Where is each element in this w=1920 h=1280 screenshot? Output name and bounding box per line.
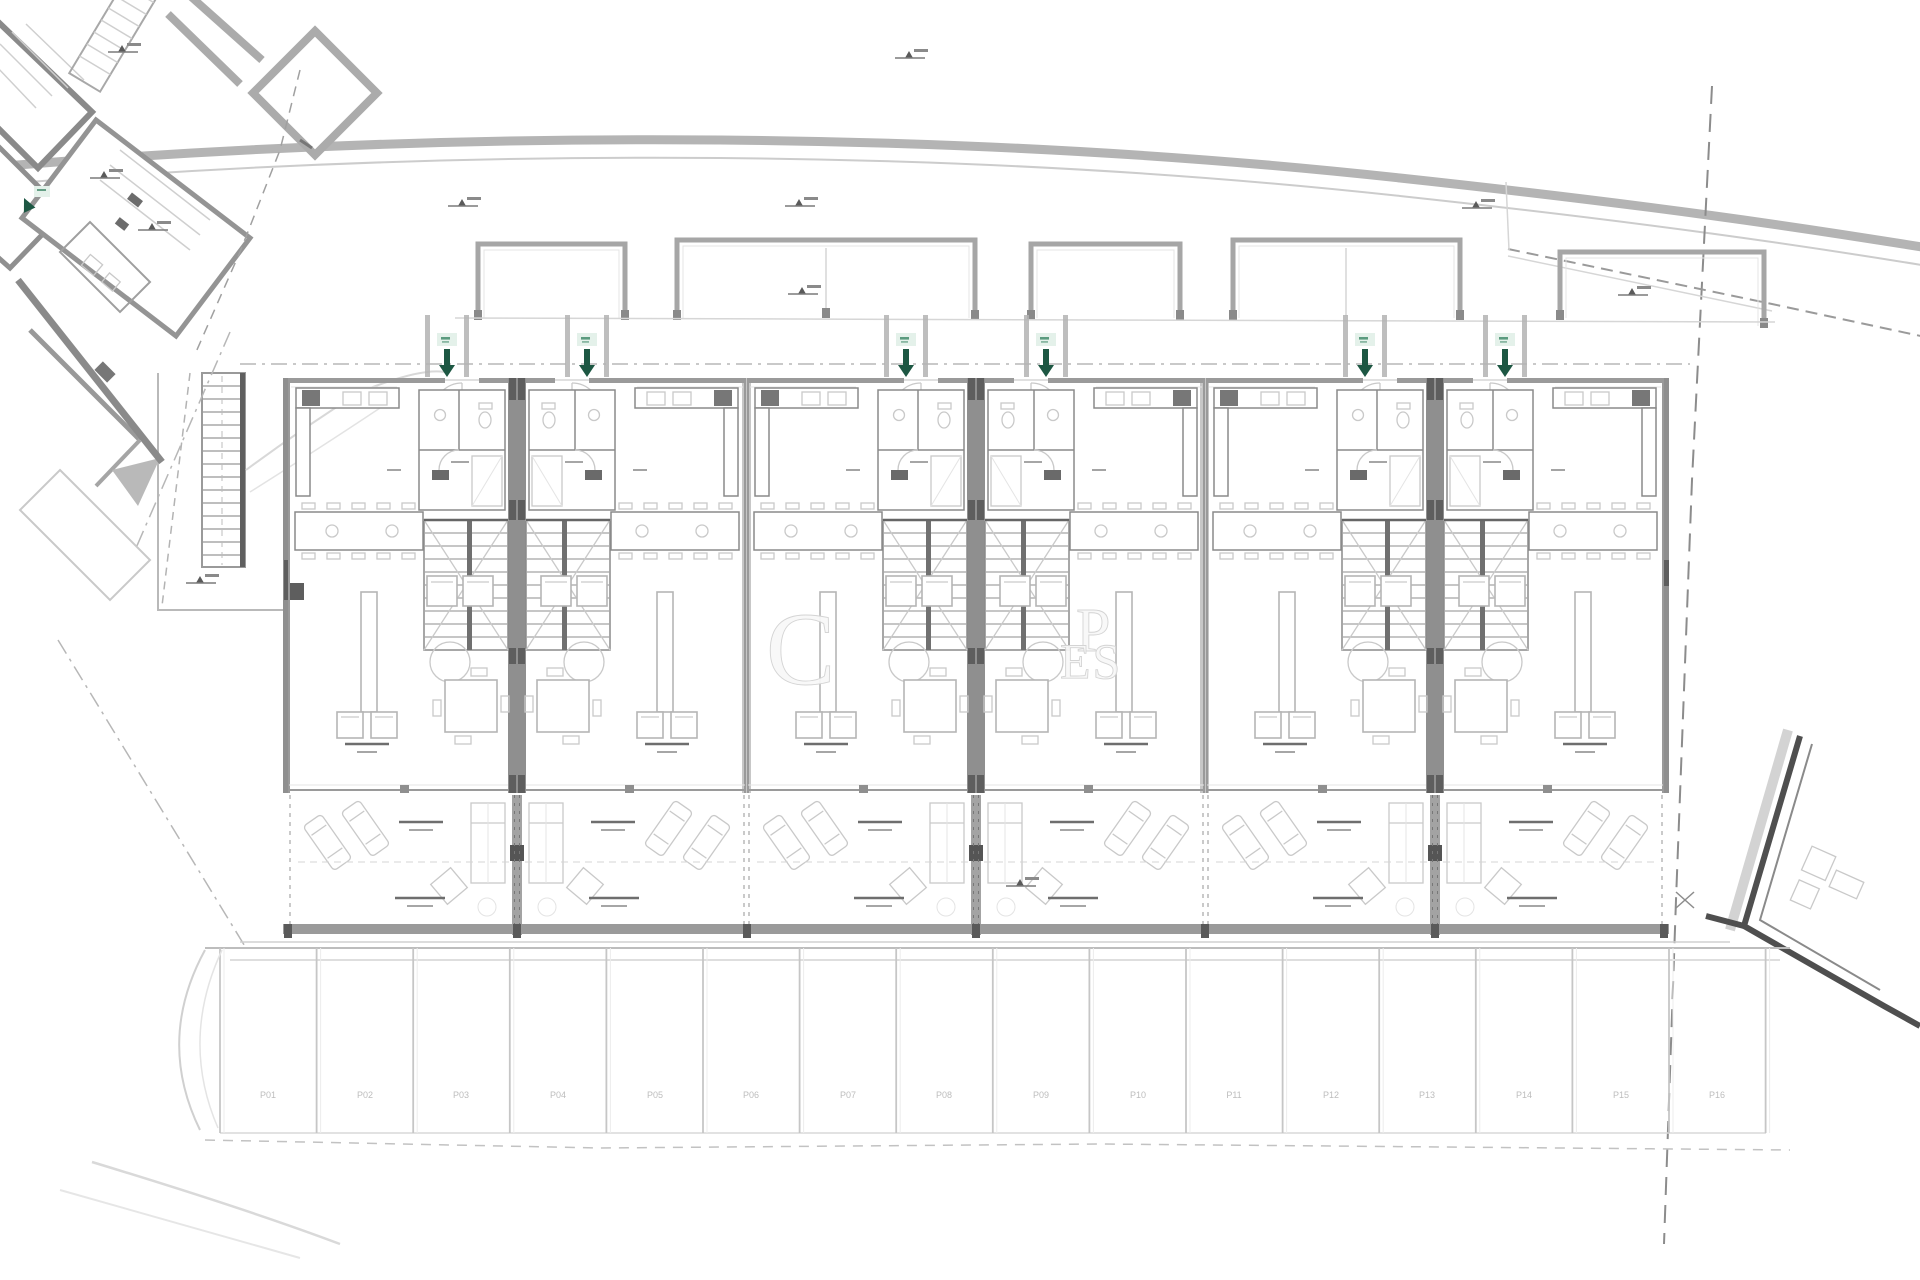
main-building bbox=[240, 315, 1690, 793]
unit-6 bbox=[1435, 378, 1664, 793]
existing-buildings-northwest bbox=[0, 0, 377, 600]
level-marker-icon bbox=[785, 197, 818, 206]
exterior-stair bbox=[202, 373, 245, 567]
carport-2 bbox=[673, 240, 979, 320]
site-boundaries bbox=[58, 86, 1920, 1258]
terrace-2 bbox=[515, 795, 744, 935]
parking-stall-label: P07 bbox=[840, 1090, 856, 1100]
parking-stall-label: P14 bbox=[1516, 1090, 1532, 1100]
parking-stall-label: P03 bbox=[453, 1090, 469, 1100]
parking-stall-label: P16 bbox=[1709, 1090, 1725, 1100]
level-marker-icon bbox=[186, 574, 219, 583]
parking-stall-label: P06 bbox=[743, 1090, 759, 1100]
level-marker-icon bbox=[895, 49, 928, 58]
parking-stall-label: P08 bbox=[936, 1090, 952, 1100]
parking-stall-label: P02 bbox=[357, 1090, 373, 1100]
level-marker-icon bbox=[1618, 286, 1651, 295]
parking-row: P01 P02 P03 P04 P05 P06 P07 P08 P09 P10 … bbox=[179, 948, 1790, 1150]
level-marker-icon bbox=[788, 285, 821, 294]
parking-stall-label: P10 bbox=[1130, 1090, 1146, 1100]
terrace-6 bbox=[1433, 795, 1662, 935]
floor-plan-canvas: P01 P02 P03 P04 P05 P06 P07 P08 P09 P10 … bbox=[0, 0, 1920, 1280]
west-yard-and-stair bbox=[18, 280, 444, 610]
watermark-letter: C bbox=[766, 592, 835, 707]
terrace-5 bbox=[1208, 795, 1437, 935]
parking-stall-label: P01 bbox=[260, 1090, 276, 1100]
parking-stall-label: P04 bbox=[550, 1090, 566, 1100]
entrance-arrows bbox=[425, 315, 1527, 377]
parking-stall-label: P12 bbox=[1323, 1090, 1339, 1100]
entrance-arrow-icon bbox=[1483, 315, 1527, 377]
unit-4 bbox=[976, 378, 1205, 793]
entrance-arrow-icon bbox=[884, 315, 928, 377]
level-marker-icon bbox=[108, 43, 141, 52]
carport-1 bbox=[474, 244, 629, 320]
entrance-halo bbox=[34, 186, 50, 197]
parking-stall-label: P13 bbox=[1419, 1090, 1435, 1100]
unit-1 bbox=[288, 378, 517, 793]
entrance-arrow-icon bbox=[1024, 315, 1068, 377]
entrance-arrow-icon bbox=[1343, 315, 1387, 377]
terrace-1 bbox=[290, 795, 519, 935]
top-road bbox=[0, 140, 1920, 268]
terrace-4 bbox=[974, 795, 1203, 935]
carport-3 bbox=[1027, 244, 1184, 320]
site-level-markers bbox=[448, 49, 1651, 295]
entrance-arrow-icon bbox=[425, 315, 469, 377]
terrace-3 bbox=[749, 795, 978, 935]
parking-stall-label: P15 bbox=[1613, 1090, 1629, 1100]
entrance-arrow-icon bbox=[565, 315, 609, 377]
parking-stall-label: P09 bbox=[1033, 1090, 1049, 1100]
parking-stall-label: P11 bbox=[1226, 1090, 1241, 1100]
parking-stall-label: P05 bbox=[647, 1090, 663, 1100]
carports bbox=[455, 240, 1775, 328]
unit-3 bbox=[747, 378, 976, 793]
carport-4 bbox=[1229, 240, 1464, 320]
carport-5 bbox=[1556, 252, 1768, 328]
neighbor-building-southeast bbox=[1706, 730, 1920, 1026]
watermark-letter: ES bbox=[1060, 633, 1122, 689]
level-marker-icon bbox=[448, 197, 481, 206]
terraces bbox=[230, 795, 1780, 960]
unit-5 bbox=[1206, 378, 1435, 793]
unit-2 bbox=[517, 378, 746, 793]
